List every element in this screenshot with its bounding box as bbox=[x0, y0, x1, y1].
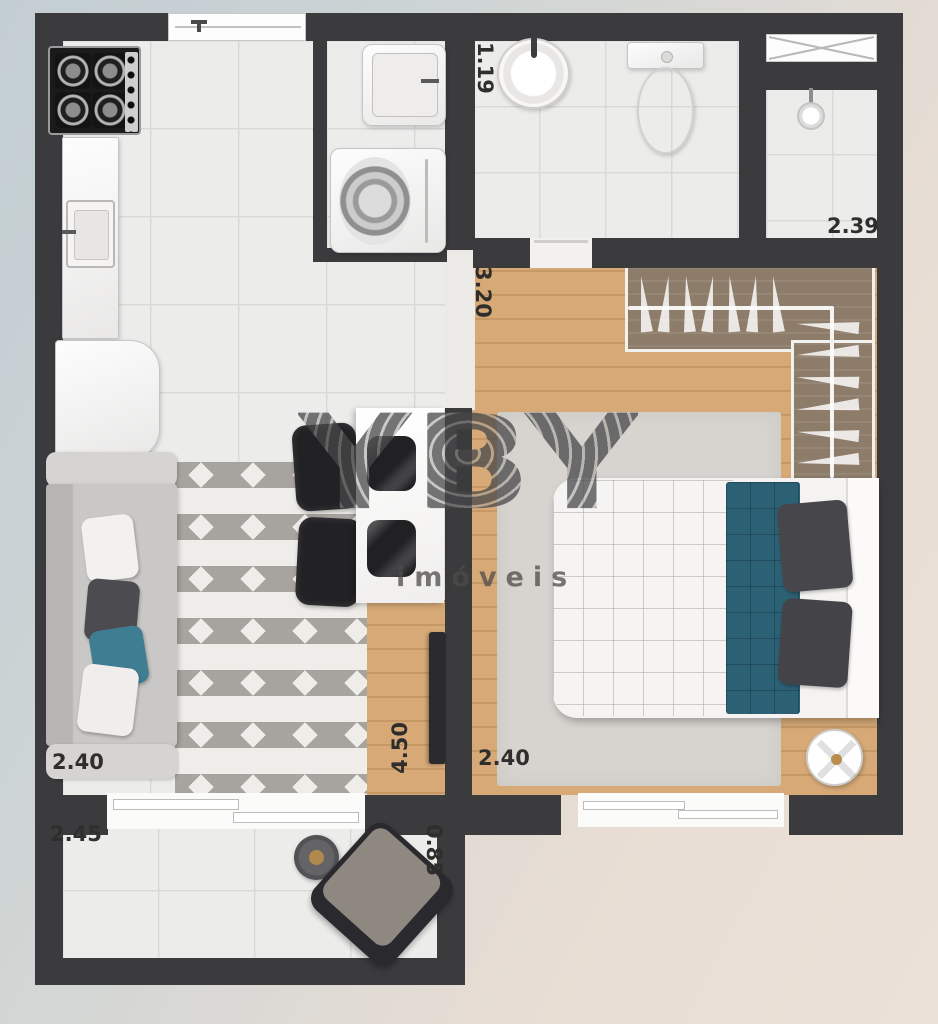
burner-icon bbox=[92, 92, 128, 128]
laundry-tank-icon bbox=[362, 44, 446, 126]
tank-basin bbox=[372, 53, 438, 117]
tv-rack bbox=[429, 632, 446, 764]
bedroom-window bbox=[578, 793, 784, 827]
place-setting bbox=[367, 436, 416, 491]
measurement-balcony-depth: 0.85 bbox=[423, 824, 444, 876]
wall-kitchen-bath-divider bbox=[445, 13, 475, 250]
sofa-armrest-top bbox=[46, 452, 177, 487]
sink-basin bbox=[74, 210, 109, 260]
bedroom-window-pane-left bbox=[583, 801, 685, 810]
sink-faucet-icon bbox=[531, 36, 537, 58]
wall-right bbox=[877, 13, 903, 835]
kitchen-window bbox=[168, 13, 306, 41]
bed-pillow bbox=[777, 598, 853, 689]
washer-drum-icon bbox=[339, 157, 411, 245]
wall-under-shower-window bbox=[766, 60, 877, 90]
measurement-balcony: 2.45 bbox=[50, 824, 102, 845]
tank-faucet-icon bbox=[421, 79, 439, 83]
measurement-hall: 3.20 bbox=[472, 266, 493, 318]
wall-living-bedroom-divider bbox=[445, 408, 472, 797]
stove-knobs-icon bbox=[125, 52, 138, 132]
burner-icon bbox=[55, 53, 91, 89]
burner-icon bbox=[92, 53, 128, 89]
sliding-door-pane-right bbox=[233, 812, 359, 823]
bedroom-window-pane-right bbox=[678, 810, 778, 819]
place-setting bbox=[367, 520, 416, 577]
window-x-icon bbox=[767, 35, 876, 61]
stove-icon bbox=[48, 46, 141, 135]
floor-plan: 1.19 2.39 3.20 2.40 2.40 4.50 2.45 0.85 … bbox=[0, 0, 938, 1024]
dining-chair bbox=[291, 422, 361, 512]
sofa-pillow-white bbox=[80, 513, 139, 583]
double-bed bbox=[553, 478, 877, 718]
toilet-bowl-icon bbox=[637, 67, 694, 154]
window-handle-stem-icon bbox=[197, 23, 201, 32]
table-decor bbox=[309, 850, 324, 865]
faucet-icon bbox=[62, 230, 76, 234]
bed-duvet bbox=[553, 480, 733, 716]
kitchen-window-frame bbox=[175, 26, 301, 28]
bathroom-door-leaf bbox=[534, 240, 588, 243]
shower-head-icon bbox=[797, 102, 825, 130]
measurement-living: 2.40 bbox=[52, 752, 104, 773]
bathroom-door bbox=[530, 238, 592, 268]
wall-laundry-left bbox=[313, 40, 327, 262]
measurement-shower: 2.39 bbox=[827, 216, 879, 237]
round-side-table bbox=[806, 729, 863, 786]
bed-pillow bbox=[776, 499, 853, 593]
measurement-bedroom: 2.40 bbox=[478, 748, 530, 769]
measurement-living-length: 4.50 bbox=[390, 722, 411, 774]
chevron-rug bbox=[175, 462, 367, 794]
round-sink-icon bbox=[497, 38, 570, 109]
sliding-door-pane-left bbox=[113, 799, 239, 810]
wall-balcony-bottom bbox=[35, 958, 465, 985]
washing-machine-icon bbox=[330, 148, 446, 253]
table-decor-dot bbox=[831, 754, 842, 765]
dining-chair bbox=[295, 516, 364, 607]
toilet-tank-icon bbox=[627, 42, 704, 69]
measurement-bathroom: 1.19 bbox=[474, 42, 495, 94]
washer-door-edge bbox=[425, 159, 428, 243]
balcony-sliding-door bbox=[107, 793, 365, 829]
refrigerator-icon bbox=[55, 340, 160, 459]
flush-button bbox=[661, 51, 673, 63]
burner-icon bbox=[55, 92, 91, 128]
kitchen-sink-icon bbox=[66, 200, 115, 268]
wall-bath-shower-divider bbox=[739, 40, 766, 268]
wall-bottom-right bbox=[789, 795, 903, 835]
shower-window bbox=[766, 34, 877, 62]
sofa-pillow-white bbox=[76, 663, 140, 737]
bed-headboard bbox=[846, 478, 879, 718]
